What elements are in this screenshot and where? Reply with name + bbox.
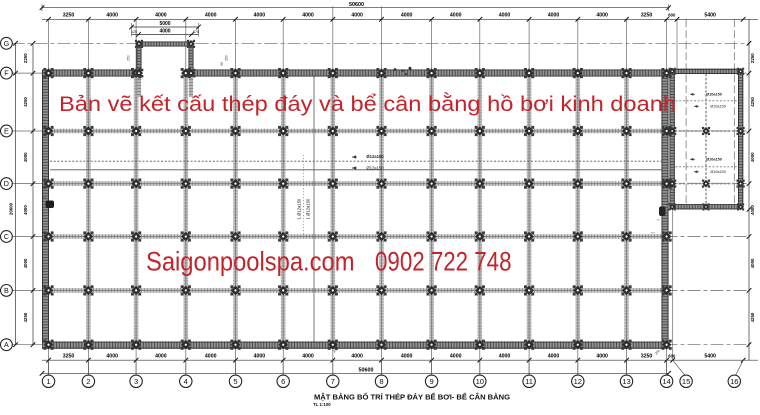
svg-text:600: 600 [668, 12, 676, 17]
svg-text:3250: 3250 [63, 354, 75, 360]
svg-text:Ø10a150: Ø10a150 [706, 158, 722, 162]
svg-text:TL 1:100: TL 1:100 [313, 402, 331, 407]
svg-text:D: D [4, 179, 9, 188]
svg-text:4250: 4250 [750, 312, 755, 322]
svg-text:50600: 50600 [349, 2, 364, 8]
svg-text:4000: 4000 [499, 12, 511, 18]
svg-text:E: E [4, 127, 9, 136]
svg-text:4250: 4250 [23, 312, 28, 322]
svg-text:2250: 2250 [750, 53, 755, 63]
svg-text:1 Ø12a150: 1 Ø12a150 [297, 198, 302, 219]
svg-text:4000: 4000 [205, 12, 217, 18]
svg-text:Ø12a150: Ø12a150 [366, 165, 384, 170]
svg-text:5400: 5400 [704, 12, 716, 18]
svg-text:4000: 4000 [351, 354, 363, 360]
svg-text:4000: 4000 [254, 354, 266, 360]
svg-text:Bản vẽ kết cấu thép đáy và bể: Bản vẽ kết cấu thép đáy và bể cân bằng h… [59, 93, 676, 116]
svg-text:4000: 4000 [106, 354, 118, 360]
svg-text:4250: 4250 [23, 97, 28, 107]
svg-text:4000: 4000 [302, 12, 314, 18]
svg-text:°°°: °°° [651, 232, 656, 236]
svg-text:4000: 4000 [205, 354, 217, 360]
svg-text:1: 1 [46, 377, 50, 386]
svg-text:3250: 3250 [63, 12, 75, 18]
svg-text:4000: 4000 [23, 152, 28, 162]
svg-text:G: G [4, 39, 10, 48]
svg-text:4000: 4000 [548, 12, 560, 18]
svg-text:4000: 4000 [155, 12, 167, 18]
svg-text:4000: 4000 [750, 258, 755, 268]
svg-text:2250: 2250 [23, 53, 28, 63]
svg-text:250: 250 [225, 55, 229, 61]
svg-text:°°: °° [656, 219, 660, 223]
svg-text:4000: 4000 [351, 12, 363, 18]
svg-text:250: 250 [127, 55, 131, 61]
svg-text:4000: 4000 [106, 12, 118, 18]
svg-text:MẬT BẰNG BỐ TRÍ THÉP ĐÁY BỂ BƠ: MẬT BẰNG BỐ TRÍ THÉP ĐÁY BỂ BƠI- BỂ CÂN … [314, 392, 510, 402]
svg-text:5: 5 [233, 377, 237, 386]
svg-text:16: 16 [730, 377, 738, 386]
svg-text:A: A [4, 340, 9, 349]
svg-text:4000: 4000 [450, 354, 462, 360]
svg-text:11: 11 [525, 377, 533, 386]
svg-text:875: 875 [193, 30, 199, 34]
svg-text:600: 600 [668, 354, 676, 359]
svg-text:Ø10a150: Ø10a150 [710, 170, 726, 174]
svg-text:2: 2 [86, 377, 90, 386]
svg-text:14: 14 [662, 377, 670, 386]
svg-text:°°: °° [331, 343, 335, 347]
svg-text:4000: 4000 [155, 354, 167, 360]
svg-text:15: 15 [682, 377, 690, 386]
svg-text:4000: 4000 [450, 12, 462, 18]
svg-text:4000: 4000 [302, 354, 314, 360]
svg-text:4000: 4000 [750, 205, 755, 215]
svg-text:Saigonpoolspa.com: Saigonpoolspa.com [146, 246, 355, 276]
svg-text:4000: 4000 [23, 258, 28, 268]
svg-text:4000: 4000 [401, 354, 413, 360]
svg-text:Ø10a150: Ø10a150 [710, 105, 726, 109]
svg-text:8: 8 [379, 377, 383, 386]
svg-text:5000: 5000 [159, 21, 170, 27]
svg-text:7: 7 [331, 377, 335, 386]
svg-text:4000: 4000 [159, 29, 170, 35]
svg-text:4000: 4000 [548, 354, 560, 360]
svg-text:4000: 4000 [499, 354, 511, 360]
svg-text:4000: 4000 [596, 354, 608, 360]
svg-text:C: C [4, 232, 9, 241]
svg-text:4000: 4000 [750, 152, 755, 162]
svg-text:Ø10a150: Ø10a150 [706, 93, 722, 97]
svg-text:6: 6 [281, 377, 285, 386]
svg-text:°°: °° [43, 196, 47, 201]
svg-text:4000: 4000 [596, 12, 608, 18]
svg-text:4000: 4000 [23, 205, 28, 215]
svg-text:3250: 3250 [641, 354, 653, 360]
svg-text:13: 13 [622, 377, 630, 386]
svg-text:5400: 5400 [704, 354, 716, 360]
svg-text:20600: 20600 [9, 202, 14, 215]
svg-text:3250: 3250 [641, 12, 653, 18]
svg-text:12: 12 [574, 377, 582, 386]
svg-text:4250: 4250 [750, 97, 755, 107]
svg-text:Ø12a150: Ø12a150 [366, 154, 384, 159]
svg-text:1 Ø12a150: 1 Ø12a150 [306, 198, 311, 219]
svg-text:4: 4 [184, 377, 188, 386]
svg-text:3: 3 [134, 377, 138, 386]
svg-text:125: 125 [131, 30, 137, 34]
svg-text:50600: 50600 [359, 368, 374, 374]
svg-text:50: 50 [220, 62, 224, 66]
svg-text:4000: 4000 [401, 12, 413, 18]
svg-text:4000: 4000 [254, 12, 266, 18]
svg-text:9: 9 [429, 377, 433, 386]
svg-text:B: B [4, 286, 9, 295]
svg-text:F: F [4, 69, 9, 78]
svg-text:0902 722 748: 0902 722 748 [375, 246, 512, 276]
svg-text:10: 10 [476, 377, 484, 386]
